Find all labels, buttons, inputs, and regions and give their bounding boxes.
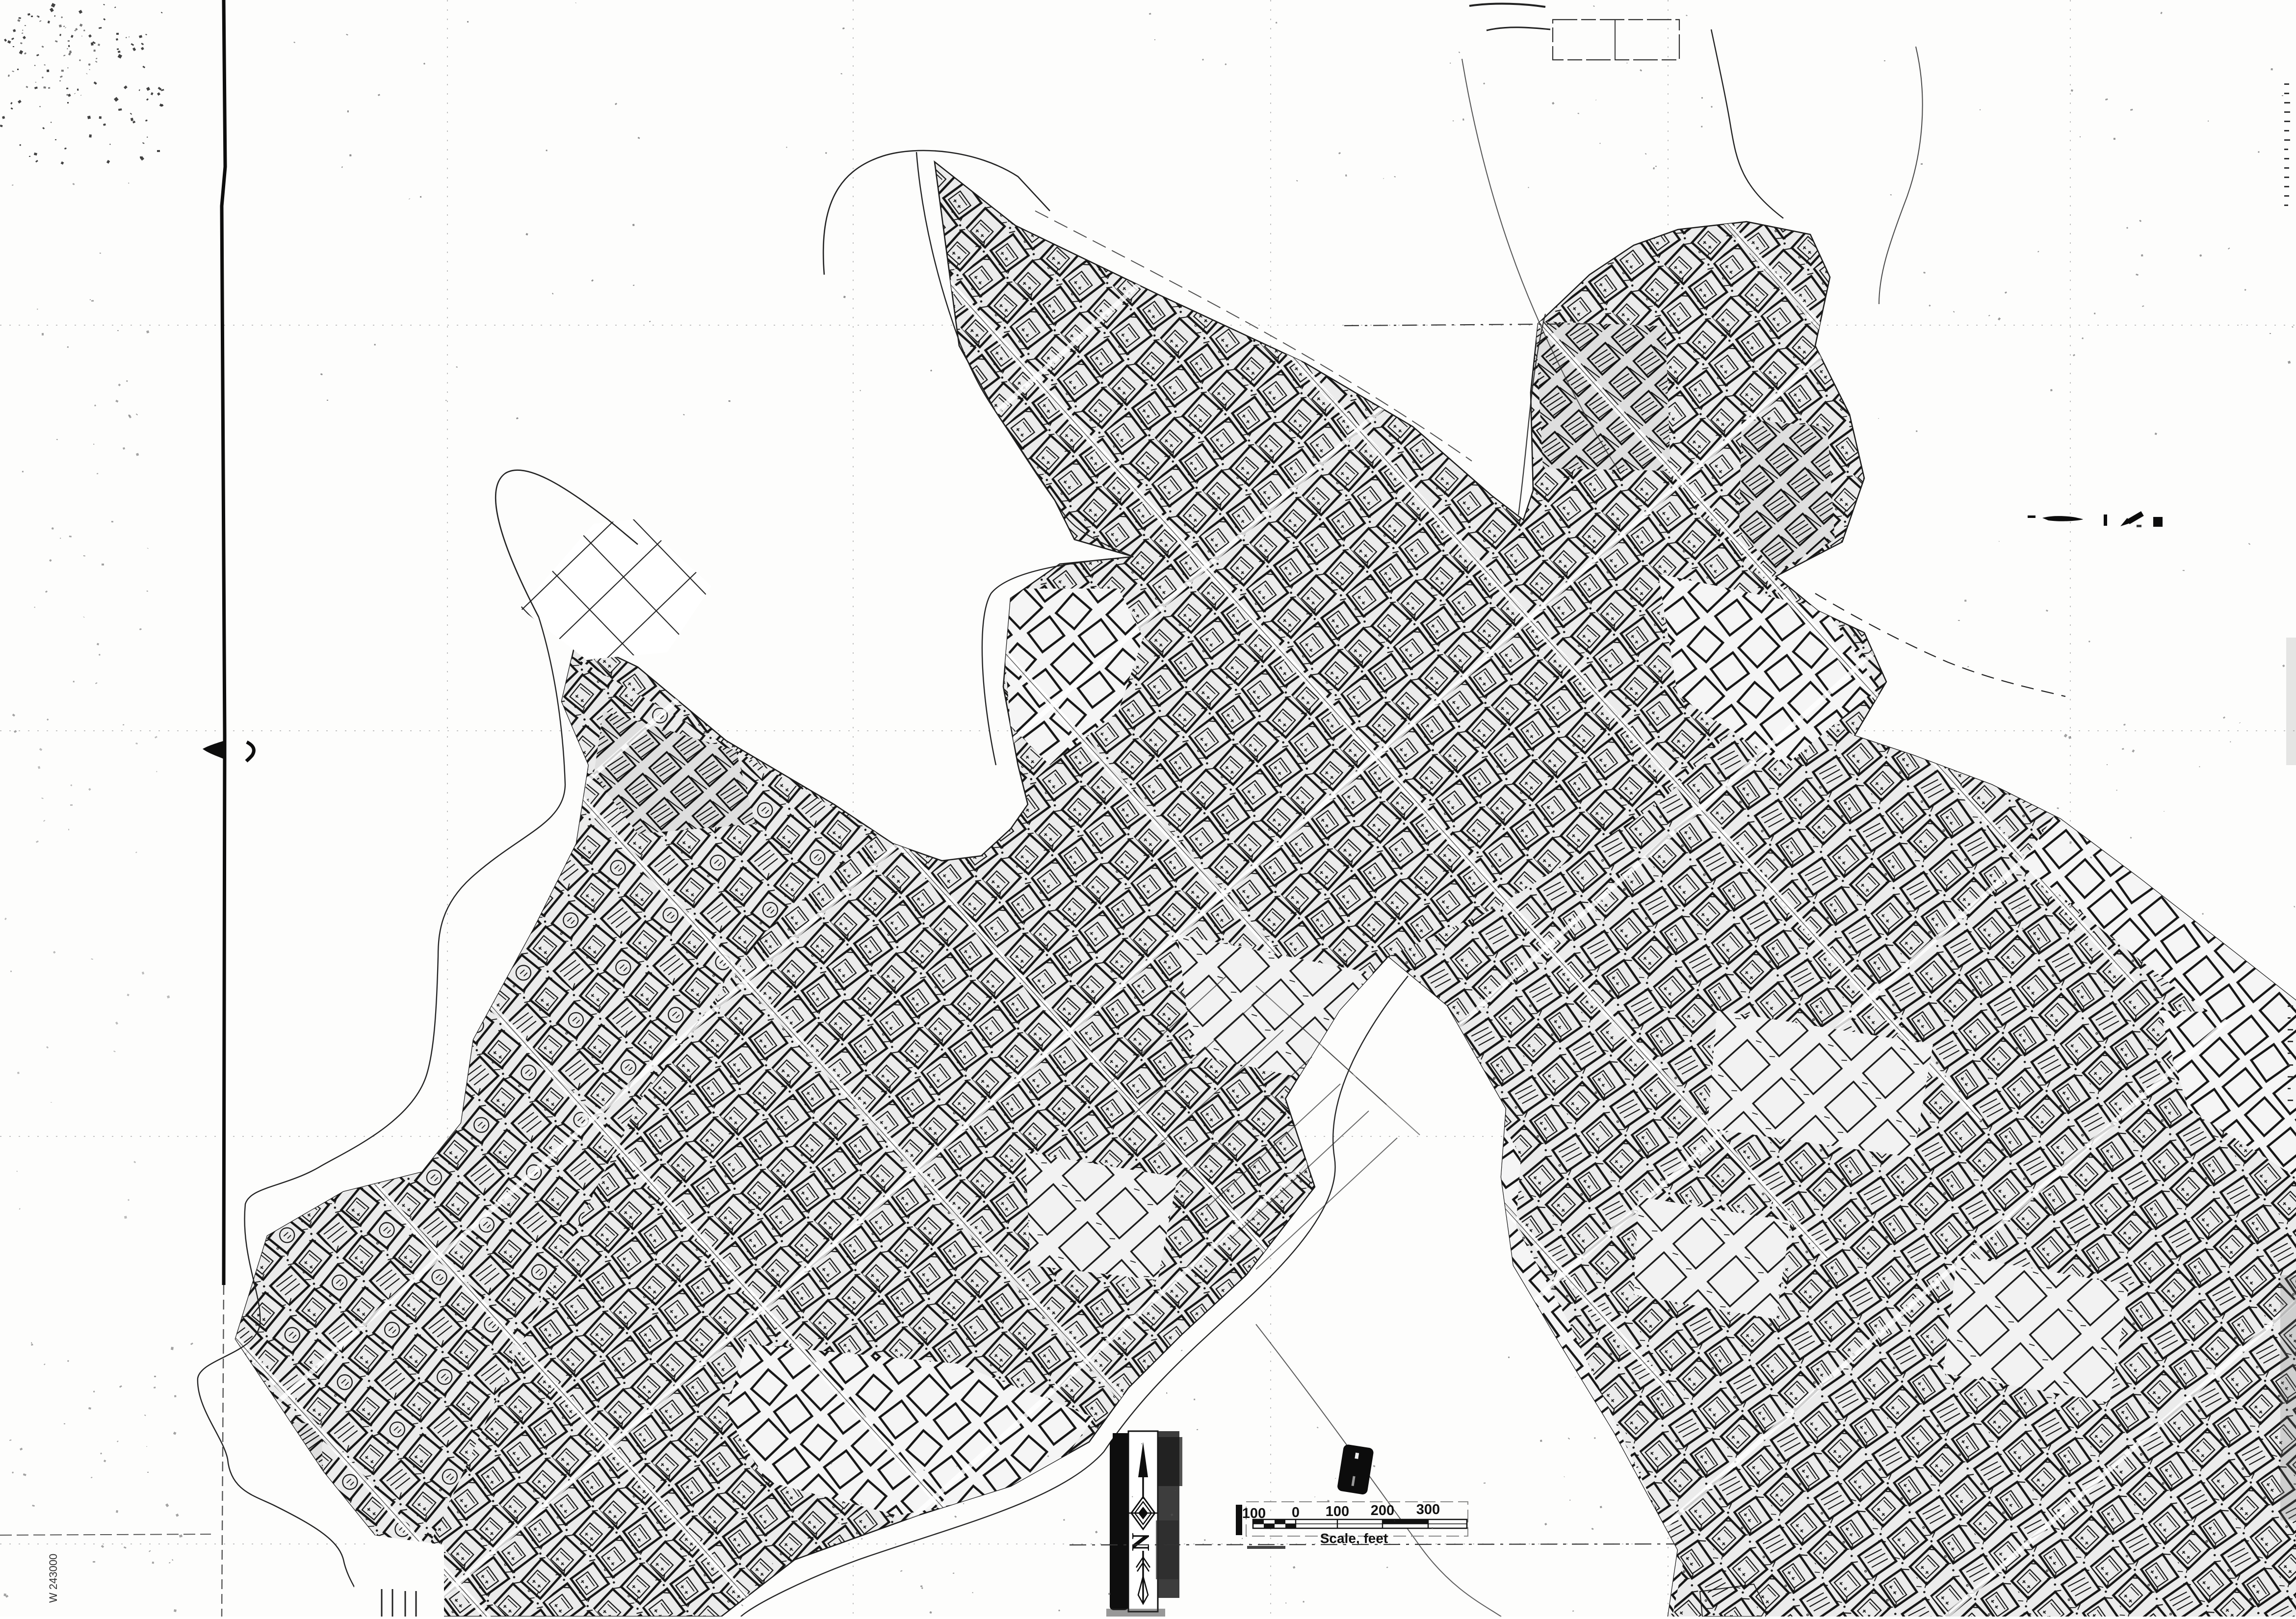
svg-text:N: N <box>1127 1533 1155 1551</box>
svg-text:200: 200 <box>1371 1503 1394 1518</box>
svg-text:100: 100 <box>1326 1504 1349 1519</box>
svg-text:300: 300 <box>1416 1502 1440 1517</box>
svg-text:0: 0 <box>1292 1505 1300 1520</box>
svg-text:W 243000: W 243000 <box>47 1554 59 1603</box>
svg-text:Scale, feet: Scale, feet <box>1320 1531 1388 1546</box>
